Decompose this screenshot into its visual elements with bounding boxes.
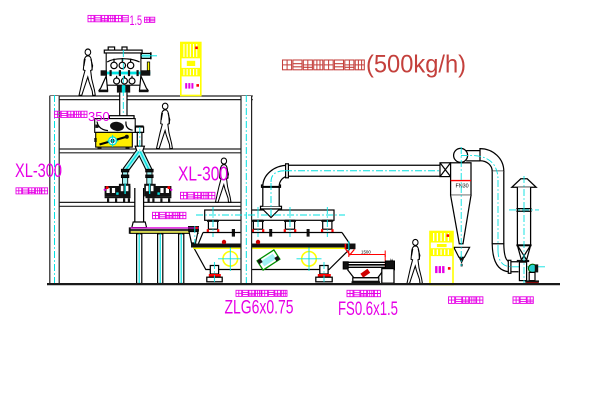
svg-text:1500: 1500 [361,250,371,255]
svg-text:ZLG6x0.75: ZLG6x0.75 [225,298,294,319]
svg-text:1.5: 1.5 [130,12,143,28]
svg-text:FN30: FN30 [456,183,469,189]
svg-text:XL-300: XL-300 [15,160,62,182]
svg-text:FS0.6x1.5: FS0.6x1.5 [338,299,398,320]
svg-text:XL-300: XL-300 [178,163,228,186]
svg-text:(500kg/h): (500kg/h) [366,51,466,79]
svg-text:350: 350 [88,109,110,124]
